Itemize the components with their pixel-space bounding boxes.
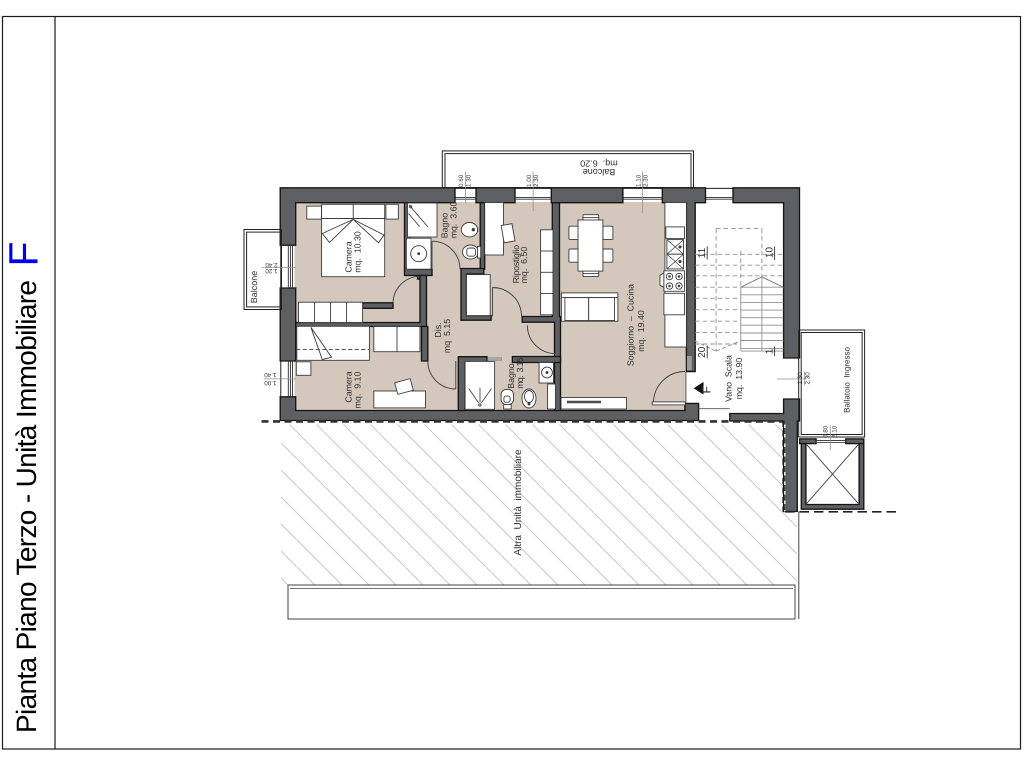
svg-text:2.30: 2.30 [643, 174, 650, 187]
svg-text:2.40: 2.40 [265, 261, 278, 268]
svg-text:mq. 3.60: mq. 3.60 [448, 202, 458, 239]
svg-text:mq. 13.90: mq. 13.90 [734, 358, 744, 400]
svg-text:2.30: 2.30 [533, 174, 540, 187]
svg-text:2.30: 2.30 [804, 372, 811, 385]
svg-text:0.80: 0.80 [823, 425, 830, 438]
svg-text:Balcone: Balcone [249, 271, 259, 304]
svg-text:11: 11 [697, 247, 708, 258]
svg-text:mq. 6.20: mq. 6.20 [580, 158, 618, 168]
svg-text:mq. 19.40: mq. 19.40 [636, 310, 646, 352]
svg-text:mq. 9.10: mq. 9.10 [353, 372, 363, 409]
svg-text:F: F [1, 241, 47, 266]
svg-text:Soggiorno – Cucina: Soggiorno – Cucina [626, 284, 636, 366]
svg-text:mq. 10.30: mq. 10.30 [353, 231, 363, 273]
svg-text:mq 5.15: mq 5.15 [442, 319, 452, 353]
svg-text:Pianta Piano Terzo - Unità Imm: Pianta Piano Terzo - Unità Immobiliare [11, 280, 42, 733]
svg-text:mq. 3.15: mq. 3.15 [515, 357, 525, 389]
svg-text:1.00: 1.00 [526, 174, 533, 187]
svg-text:Altra Unità immobiliare: Altra Unità immobiliare [513, 449, 524, 556]
svg-text:1.40: 1.40 [264, 371, 277, 378]
svg-text:1.30: 1.30 [465, 174, 472, 187]
svg-text:1.30: 1.30 [797, 372, 804, 385]
svg-text:0.60: 0.60 [458, 174, 465, 187]
svg-text:Vano Scala: Vano Scala [724, 355, 734, 402]
svg-text:1.10: 1.10 [635, 174, 642, 187]
svg-text:20: 20 [697, 346, 708, 358]
svg-text:Ballatoio Ingresso: Ballatoio Ingresso [843, 347, 852, 413]
svg-text:1.00: 1.00 [264, 379, 277, 386]
svg-text:mq. 6.50: mq. 6.50 [519, 247, 529, 284]
svg-text:F: F [700, 386, 714, 393]
svg-text:1.20: 1.20 [265, 267, 278, 274]
svg-text:1: 1 [764, 348, 775, 354]
svg-text:2.10: 2.10 [831, 425, 838, 438]
svg-text:10: 10 [764, 247, 775, 259]
